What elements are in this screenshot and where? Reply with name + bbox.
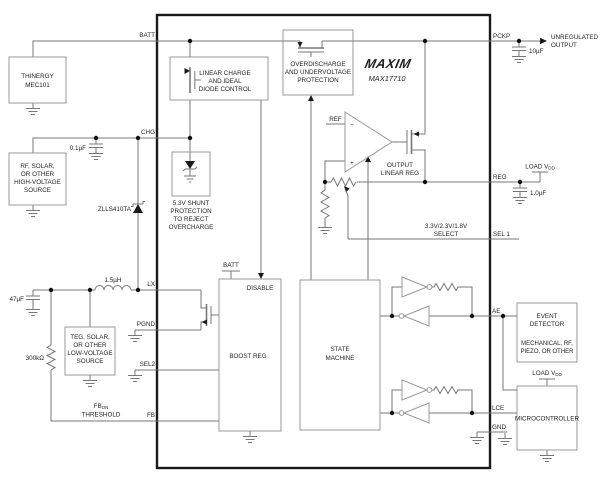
ground-lv-source — [83, 375, 97, 387]
svg-text:PROTECTION: PROTECTION — [297, 77, 339, 84]
shunt-box — [172, 152, 210, 196]
ground-thinergy — [26, 103, 40, 115]
svg-text:TO REJECT: TO REJECT — [174, 216, 209, 223]
pin-lx: LX — [147, 281, 156, 288]
lce-buf-in-wire — [392, 390, 402, 413]
ground-pgnd — [128, 330, 142, 342]
state-machine-label: STATE — [330, 346, 349, 353]
svg-text:LOW-VOLTAGE: LOW-VOLTAGE — [67, 350, 112, 357]
lce-buffer-symbols — [399, 380, 432, 423]
cap-in-symbol — [26, 290, 40, 304]
linear-charge-label: LINEAR CHARGE — [199, 70, 250, 77]
svg-text:AND UNDERVOLTAGE: AND UNDERVOLTAGE — [285, 69, 351, 76]
ground-hv-source — [26, 205, 40, 217]
ground-divider — [318, 222, 332, 234]
chip-part-number: MAX17710 — [368, 74, 406, 83]
chg-wire — [33, 138, 190, 153]
divider-bottom-res — [321, 190, 329, 218]
fb-threshold-label: THRESHOLD — [82, 412, 121, 419]
opamp-minus: − — [350, 122, 354, 129]
fb-wire — [51, 370, 219, 421]
ground-gnd-external — [498, 433, 512, 445]
cap-chg-label: 0.1µF — [70, 145, 86, 152]
hv-source-label: RF, SOLAR, — [20, 163, 55, 170]
opamp-plus: + — [350, 160, 354, 167]
ae-buffer-symbols — [399, 277, 432, 326]
cap-in-label: 47µF — [10, 296, 25, 303]
svg-text:MECHANICAL, RF,: MECHANICAL, RF, — [521, 341, 573, 347]
svg-text:OVERCHARGE: OVERCHARGE — [169, 224, 214, 231]
svg-text:LINEAR REG: LINEAR REG — [381, 170, 419, 177]
pin-gnd: GND — [492, 424, 506, 431]
disable-arrow — [258, 273, 264, 279]
pin-sel1: SEL 1 — [493, 231, 510, 238]
pin-pckp: PCKP — [493, 33, 510, 40]
schematic-page: BATT CHG LX PGND SEL2 FB PCKP REG SEL 1 … — [0, 0, 600, 492]
ground-symbols — [26, 51, 554, 462]
pin-batt: BATT — [139, 32, 155, 39]
pass-fet-drain — [412, 150, 426, 182]
svg-text:OUTPUT: OUTPUT — [551, 42, 577, 49]
select-label: 3.3V/2.3V/1.8V — [425, 223, 468, 230]
svg-text:HIGH-VOLTAGE: HIGH-VOLTAGE — [14, 179, 61, 186]
fb-on-label: FBON — [94, 403, 109, 410]
svg-text:MAXIM: MAXIM — [363, 56, 412, 71]
svg-text:PIEZO, OR OTHER: PIEZO, OR OTHER — [520, 349, 574, 355]
boost-fet-drain — [201, 290, 207, 308]
output-linear-reg-label: OUTPUT — [387, 162, 413, 169]
svg-text:AND IDEAL: AND IDEAL — [208, 78, 242, 85]
svg-text:MEC101: MEC101 — [25, 82, 50, 89]
thinergy-label: THINERGY — [21, 73, 54, 80]
unregulated-output-label: UNREGULATED — [551, 34, 599, 41]
load-vdd-label-mcu: LOAD VDD — [532, 370, 562, 377]
overdischarge-label: OVERDISCHARGE — [290, 61, 345, 68]
lce-buf-res-wire — [429, 387, 472, 414]
inductor-symbol — [95, 286, 131, 291]
cap-reg-label: 1.0µF — [530, 190, 546, 197]
inductor-label: 1.5µH — [105, 277, 122, 284]
boost-fet-gate — [211, 306, 219, 324]
svg-text:OR OTHER: OR OTHER — [21, 171, 55, 178]
maxim-logo: MAXIM — [363, 56, 412, 71]
boost-fet-arrow — [202, 320, 208, 325]
mcu-vdd-wire — [539, 379, 555, 386]
pin-reg: REG — [493, 174, 507, 181]
pin-lce: LCE — [492, 405, 504, 412]
ground-cap-chg — [89, 148, 103, 160]
pin-pgnd: PGND — [137, 321, 156, 328]
svg-text:PROTECTION: PROTECTION — [170, 208, 212, 215]
boost-batt-tap-wire — [222, 271, 240, 279]
svg-text:DETECTOR: DETECTOR — [530, 321, 565, 328]
ae-buf-in-wire — [392, 287, 402, 316]
lv-source-label: TEG, SOLAR, — [70, 334, 110, 341]
svg-text:SOURCE: SOURCE — [77, 358, 104, 365]
disable-label: DISABLE — [247, 285, 274, 292]
thinergy-box — [9, 57, 66, 103]
svg-text:DIODE CONTROL: DIODE CONTROL — [199, 86, 252, 93]
microcontroller-label: MICROCONTROLLER — [515, 416, 579, 423]
ae-mcu-wire — [503, 316, 517, 390]
svg-text:MACHINE: MACHINE — [325, 355, 354, 362]
ground-cap-out — [512, 51, 526, 63]
svg-text:OR OTHER: OR OTHER — [73, 342, 107, 349]
ground-mcu — [540, 450, 554, 462]
res-300k-symbol — [47, 345, 55, 370]
ground-cap-reg — [513, 192, 527, 204]
svg-text:SELECT: SELECT — [434, 231, 459, 238]
boost-batt-tap-label: BATT — [223, 262, 239, 269]
ground-sel2 — [128, 370, 142, 382]
pass-fet-arrow — [414, 132, 420, 137]
ground-gnd-internal — [470, 432, 484, 444]
ref-label: REF — [329, 116, 342, 123]
diode-label: ZLLS410TA — [98, 206, 132, 213]
cap-out-label: 10µF — [529, 48, 544, 55]
event-detector-label: EVENT — [537, 313, 558, 320]
pin-chg: CHG — [141, 129, 155, 136]
boost-reg-label: BOOST REG — [229, 353, 266, 360]
pin-ae: AE — [492, 308, 500, 315]
odp-control-arrow — [308, 95, 314, 101]
ground-boost — [243, 431, 257, 443]
ae-buf-res-wire — [429, 284, 472, 317]
pass-fet-source — [412, 41, 426, 134]
pin-sel2: SEL2 — [140, 361, 156, 368]
load-vdd-label-reg: LOAD VDD — [525, 164, 555, 171]
sel1-tap-arrow — [344, 186, 350, 193]
res-fb-label: 300kΩ — [26, 355, 45, 362]
divider-top-res — [325, 178, 356, 186]
pin-fb: FB — [147, 412, 155, 419]
unreg-arrow — [540, 38, 547, 44]
max17710-application-schematic: BATT CHG LX PGND SEL2 FB PCKP REG SEL 1 … — [0, 0, 600, 492]
svg-text:SOURCE: SOURCE — [24, 187, 51, 194]
shunt-label: 5.3V SHUNT — [173, 200, 210, 207]
ground-cap-in — [26, 304, 40, 316]
